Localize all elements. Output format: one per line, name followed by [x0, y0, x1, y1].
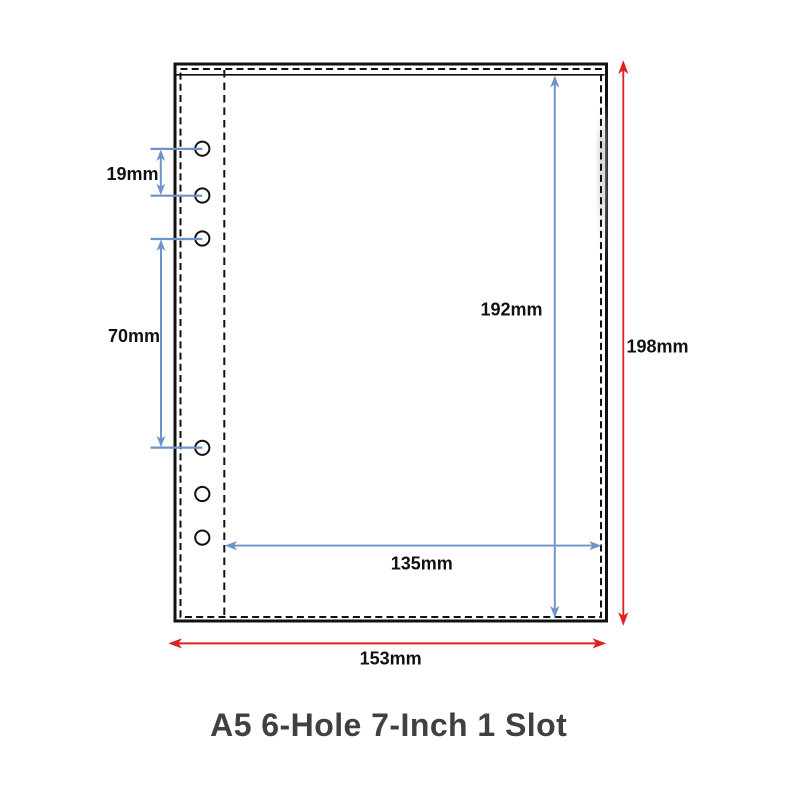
svg-text:19mm: 19mm [106, 164, 158, 184]
svg-text:135mm: 135mm [391, 553, 453, 573]
svg-text:198mm: 198mm [627, 336, 689, 356]
svg-text:153mm: 153mm [360, 649, 422, 669]
svg-text:192mm: 192mm [480, 299, 542, 319]
svg-text:A5 6-Hole 7-Inch 1 Slot: A5 6-Hole 7-Inch 1 Slot [210, 707, 567, 743]
svg-text:70mm: 70mm [108, 326, 160, 346]
